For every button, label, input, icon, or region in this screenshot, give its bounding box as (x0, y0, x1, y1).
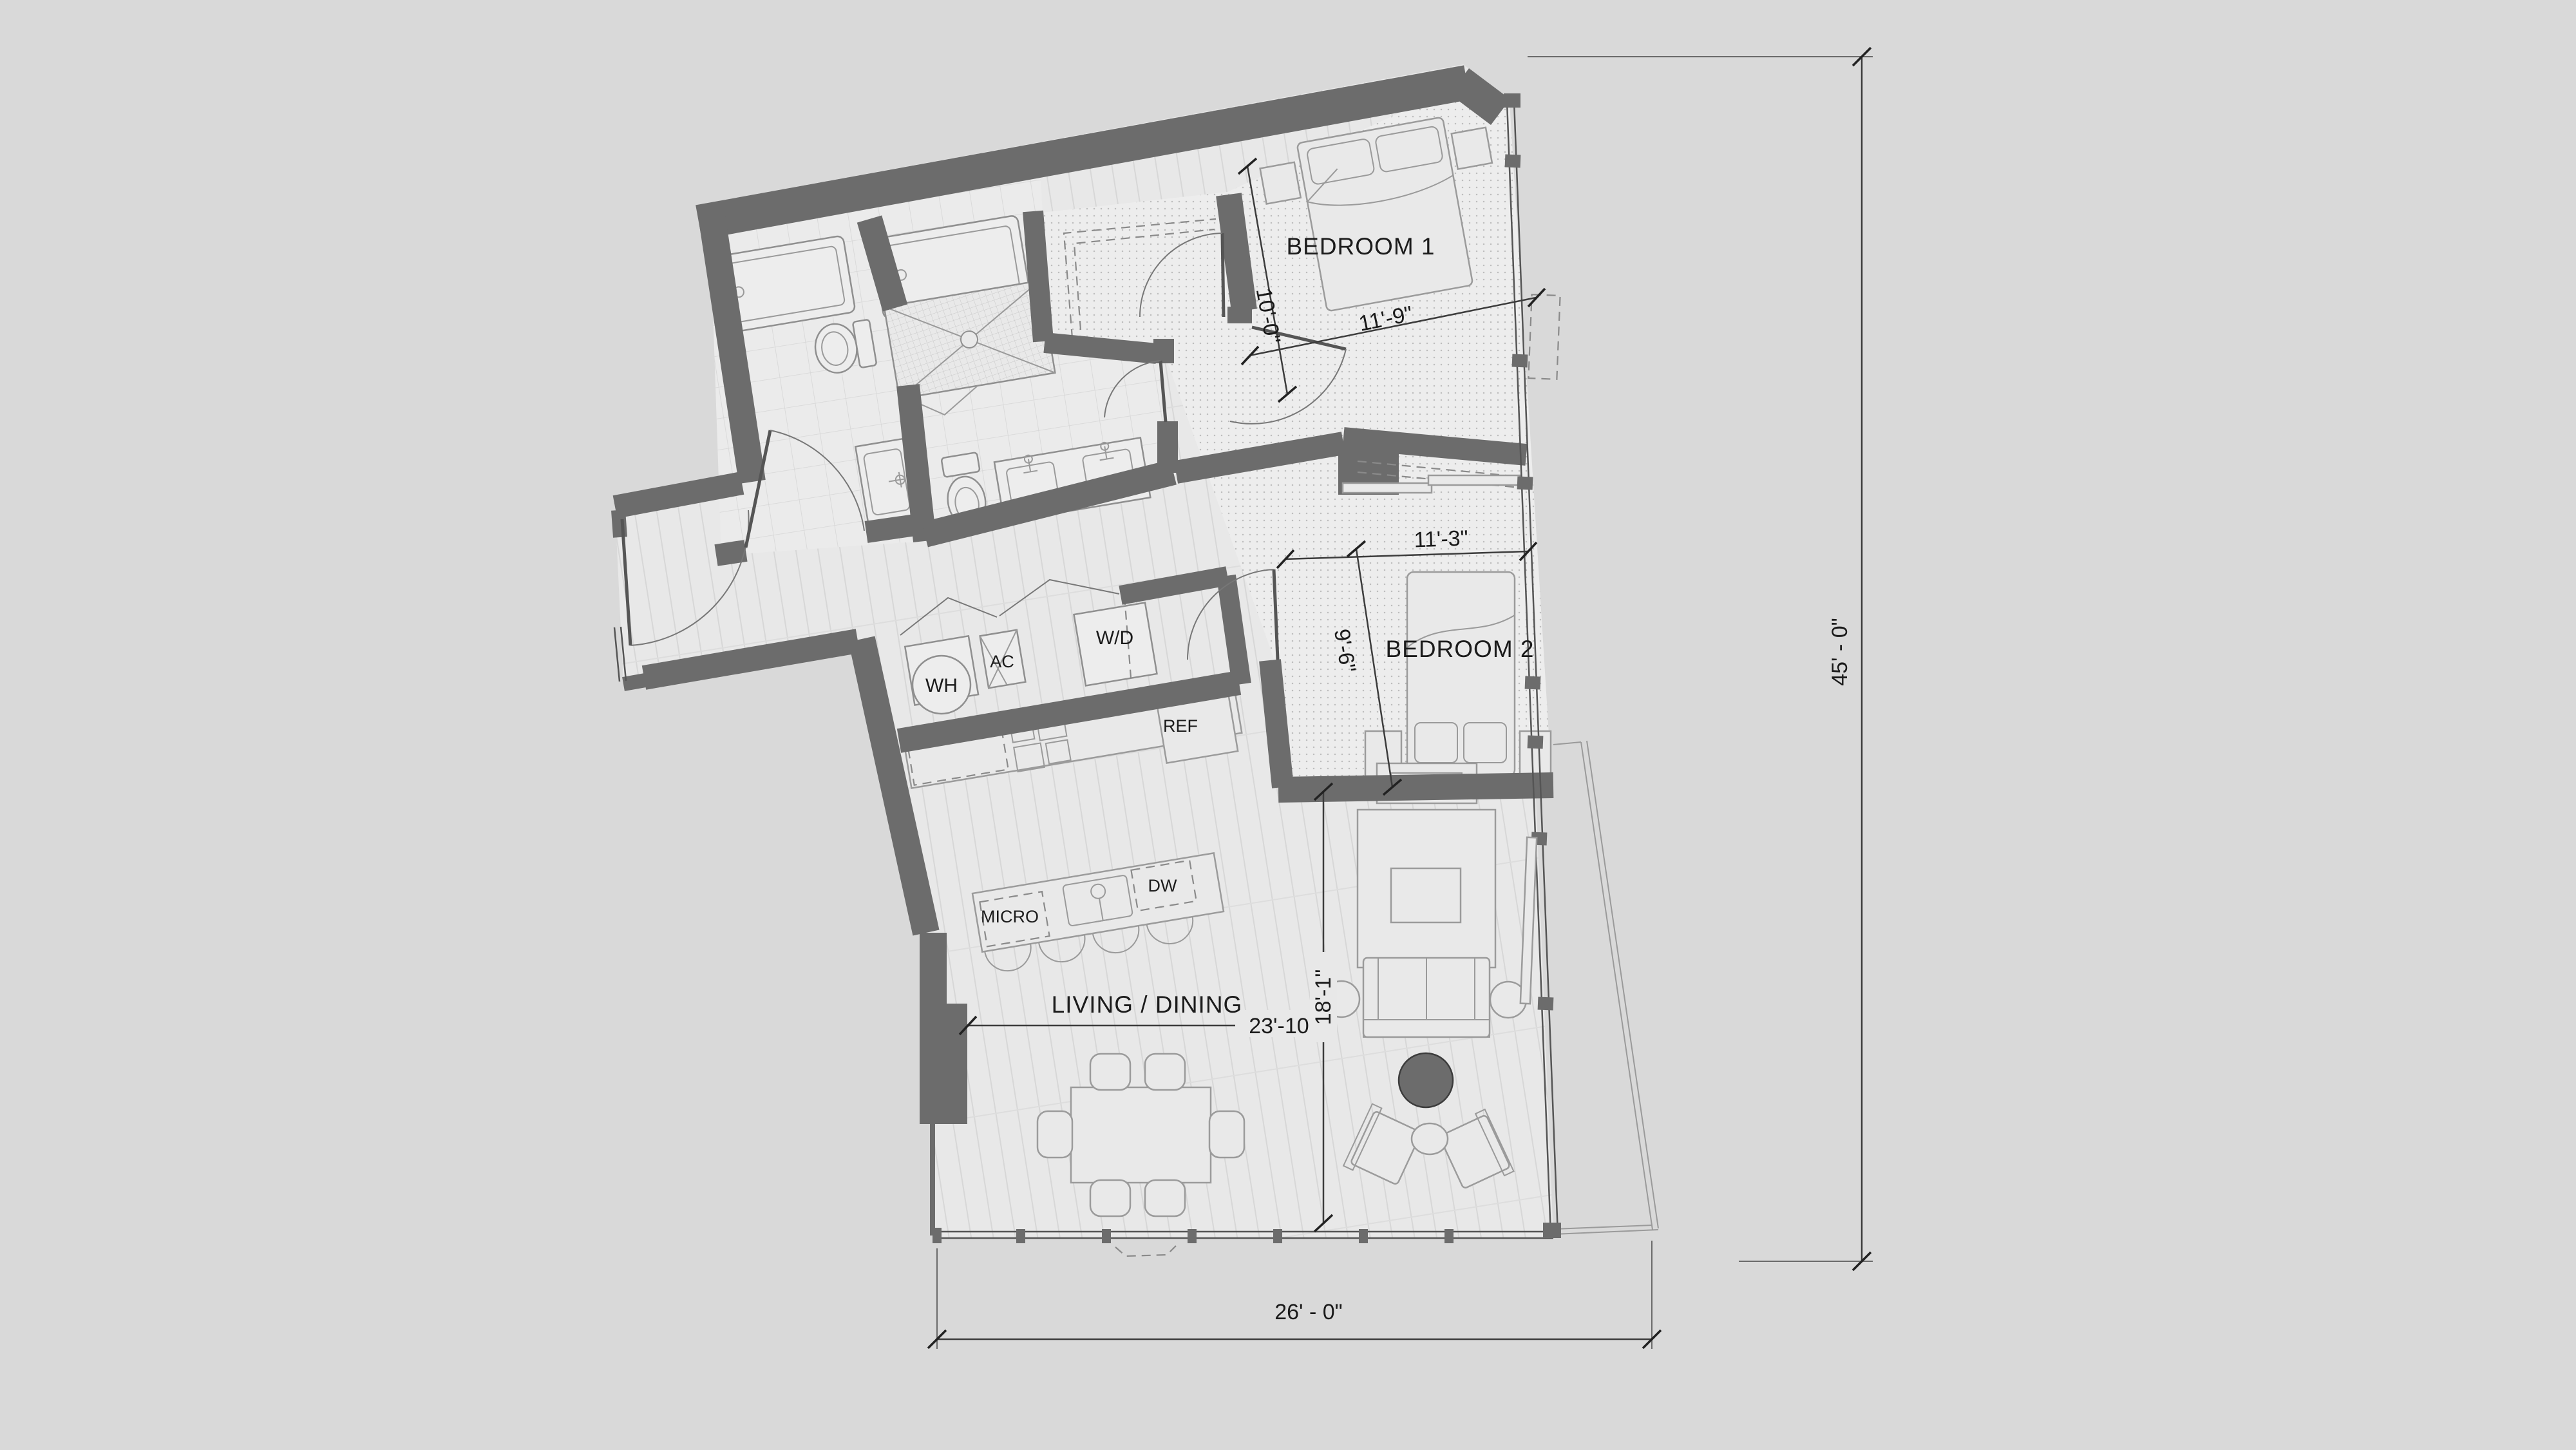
sofa (1363, 958, 1490, 1037)
label-dishwasher: DW (1148, 876, 1177, 895)
wall-bath1-bottom-b (866, 523, 929, 532)
label-living-dining: LIVING / DINING (1052, 991, 1243, 1018)
dim-label-overall-height: 45' - 0" (1828, 618, 1852, 686)
dining-chair (1037, 1111, 1072, 1158)
nightstand (1452, 128, 1492, 169)
dining-chair (1090, 1054, 1130, 1090)
label-microwave: MICRO (981, 907, 1039, 926)
floor-plan-page: 10'-0" 11'-9" 11'-3" 9'-6" 23'-1 (0, 0, 2576, 1450)
dim-label-bedroom2-width: 11'-3" (1414, 526, 1468, 553)
wall-bedroom1-left (1229, 195, 1244, 310)
dining-chair (1090, 1180, 1130, 1216)
wall-entry-stub (618, 510, 620, 537)
wall-bath1-bottom-a (716, 551, 746, 555)
dim-label-overall-width: 26' - 0" (1274, 1300, 1343, 1324)
coffee-table (1391, 868, 1461, 922)
dining-chair (1209, 1111, 1244, 1158)
floor-plan-svg: 10'-0" 11'-9" 11'-3" 9'-6" 23'-1 (0, 0, 2576, 1450)
dining-table (1071, 1087, 1211, 1183)
round-ottoman (1399, 1053, 1453, 1107)
wall-hall-block-a (1153, 339, 1174, 363)
bypass-door (1343, 483, 1432, 493)
nightstand (1260, 162, 1301, 204)
wall-bedroom2-left (1270, 660, 1283, 787)
label-ac: AC (990, 652, 1014, 671)
wall-closet-bottom (1045, 343, 1157, 354)
wall-closet-left (1033, 211, 1043, 341)
accent-table (1412, 1123, 1448, 1154)
label-refrigerator: REF (1163, 716, 1198, 736)
wall-bedroom2-bottom (1278, 785, 1553, 790)
dining-chair (1145, 1180, 1185, 1216)
dim-label-living-depth: 18'-1" (1311, 969, 1336, 1025)
label-washer-dryer: W/D (1096, 627, 1133, 649)
label-water-heater: WH (925, 675, 958, 696)
dining-chair (1145, 1054, 1185, 1090)
label-bedroom2: BEDROOM 2 (1385, 636, 1534, 662)
wall-entry-bottom-stub (623, 680, 645, 684)
bed-2 (1407, 572, 1515, 776)
bypass-door (1428, 475, 1520, 485)
wall-bedroom1-left-cap (1227, 307, 1252, 323)
label-bedroom1: BEDROOM 1 (1286, 233, 1435, 260)
dim-label-living-width: 23'-10" (1249, 1014, 1317, 1038)
